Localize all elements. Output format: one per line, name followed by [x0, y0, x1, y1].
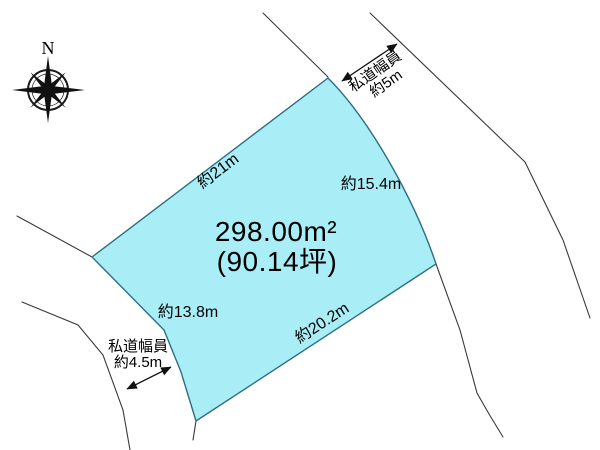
road-edge-upper-left — [263, 13, 328, 77]
north-label: N — [42, 38, 55, 58]
site-plan-drawing: N 298.00m² (90.14坪) 約21m 約15.4m 約13.8m 約… — [0, 0, 600, 450]
area-label-m2: 298.00m² — [215, 216, 337, 247]
edge-label-east: 約15.4m — [341, 175, 401, 193]
road-edge-lower-left — [22, 302, 130, 450]
boundary-line-southeast — [436, 264, 503, 437]
road-width-title-southwest: 私道幅員 — [108, 338, 168, 355]
area-label-tsubo: (90.14坪) — [217, 246, 338, 277]
boundary-line-west — [17, 216, 92, 257]
compass-points — [12, 56, 85, 123]
compass-hub — [43, 85, 54, 96]
compass-rose — [12, 56, 85, 123]
site-plan: N 298.00m² (90.14坪) 約21m 約15.4m 約13.8m 約… — [0, 0, 600, 450]
road-width-label-northeast: 私道幅員 約5m — [346, 48, 414, 109]
road-width-value-southwest: 約4.5m — [114, 354, 162, 371]
edge-label-southwest: 約13.8m — [158, 303, 218, 321]
boundary-line-below-south-vertex — [193, 421, 196, 440]
